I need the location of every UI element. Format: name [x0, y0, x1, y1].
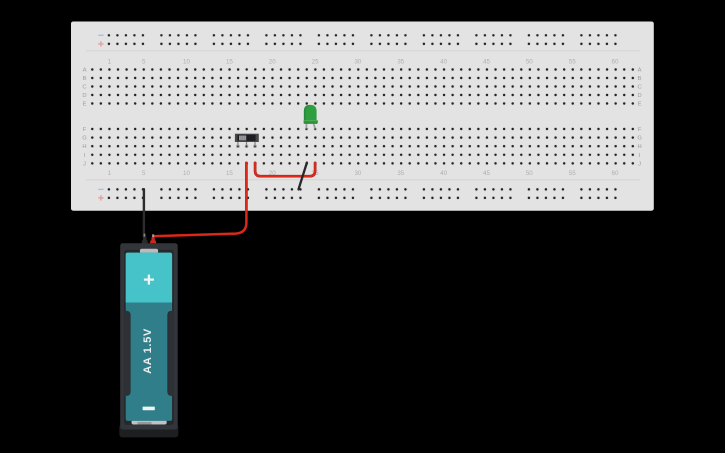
svg-text:50: 50 [526, 170, 533, 177]
svg-text:40: 40 [440, 170, 447, 177]
svg-text:G: G [82, 136, 87, 142]
svg-text:45: 45 [483, 58, 490, 65]
svg-text:60: 60 [612, 58, 619, 65]
svg-text:30: 30 [354, 58, 361, 65]
svg-text:15: 15 [226, 170, 233, 177]
svg-text:G: G [637, 136, 642, 142]
svg-text:E: E [638, 102, 642, 108]
svg-text:A: A [638, 68, 642, 74]
svg-text:C: C [82, 85, 86, 91]
svg-text:A: A [83, 68, 87, 74]
svg-text:1: 1 [108, 58, 112, 65]
svg-text:55: 55 [569, 170, 576, 177]
svg-text:J: J [638, 161, 641, 167]
svg-text:H: H [638, 144, 642, 150]
svg-text:D: D [638, 93, 642, 99]
svg-text:15: 15 [226, 58, 233, 65]
svg-text:F: F [638, 127, 642, 133]
svg-text:30: 30 [354, 170, 361, 177]
svg-text:1: 1 [108, 170, 112, 177]
svg-text:B: B [83, 76, 87, 82]
svg-text:40: 40 [440, 58, 447, 65]
svg-text:J: J [83, 161, 86, 167]
svg-text:C: C [638, 85, 642, 91]
svg-text:10: 10 [183, 58, 190, 65]
svg-text:H: H [82, 144, 86, 150]
svg-text:50: 50 [526, 58, 533, 65]
svg-text:45: 45 [483, 170, 490, 177]
svg-text:25: 25 [312, 58, 319, 65]
svg-text:5: 5 [142, 170, 146, 177]
svg-text:60: 60 [612, 170, 619, 177]
svg-text:AA 1.5V: AA 1.5V [142, 328, 154, 374]
svg-text:20: 20 [269, 58, 276, 65]
svg-text:E: E [83, 102, 87, 108]
svg-text:35: 35 [397, 170, 404, 177]
svg-text:10: 10 [183, 170, 190, 177]
svg-text:55: 55 [569, 58, 576, 65]
svg-text:B: B [638, 76, 642, 82]
svg-text:5: 5 [142, 58, 146, 65]
svg-text:35: 35 [397, 58, 404, 65]
svg-text:F: F [83, 127, 87, 133]
svg-text:D: D [82, 93, 86, 99]
